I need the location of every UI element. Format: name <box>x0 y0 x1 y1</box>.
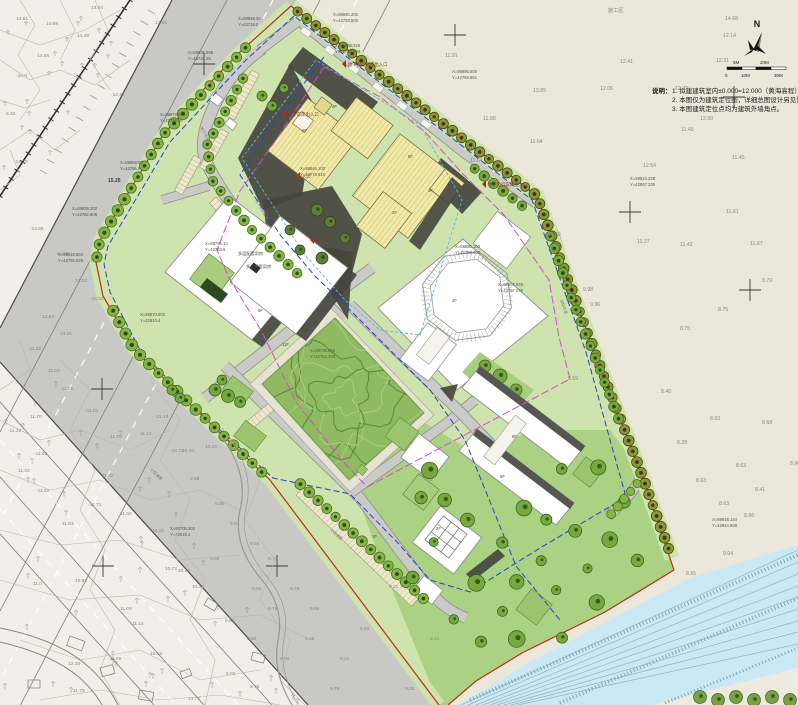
svg-text:9.96: 9.96 <box>590 302 600 308</box>
svg-text:12.22: 12.22 <box>675 86 688 92</box>
svg-text:-14.20: -14.20 <box>14 159 28 165</box>
svg-text:10M: 10M <box>741 73 750 78</box>
svg-text:8.63: 8.63 <box>710 416 720 422</box>
svg-text:8.63: 8.63 <box>719 501 729 507</box>
svg-text:11.70: 11.70 <box>30 414 42 420</box>
svg-text:8.59: 8.59 <box>568 376 578 382</box>
svg-text:X=88918.502: X=88918.502 <box>58 252 84 257</box>
svg-text:-12.47: -12.47 <box>111 92 125 98</box>
svg-text:9.90: 9.90 <box>247 636 257 642</box>
svg-text:8.63: 8.63 <box>736 463 746 469</box>
svg-text:9.35: 9.35 <box>405 686 415 692</box>
svg-text:8.28: 8.28 <box>677 440 687 446</box>
svg-text:-11.32: -11.32 <box>8 428 22 434</box>
svg-text:10.15: 10.15 <box>152 528 164 534</box>
svg-text:11.14: 11.14 <box>140 431 152 437</box>
svg-text:6F: 6F <box>500 474 505 479</box>
svg-text:1F: 1F <box>372 534 377 539</box>
svg-text:-11.32: -11.32 <box>28 346 42 352</box>
svg-text:X=88935.598: X=88935.598 <box>188 50 214 55</box>
svg-text:Y=42810.4: Y=42810.4 <box>140 318 161 323</box>
svg-text:X=88615.144: X=88615.144 <box>712 517 738 522</box>
svg-text:12.33: 12.33 <box>68 661 80 667</box>
svg-text:12.31: 12.31 <box>716 58 729 64</box>
svg-text:9.94: 9.94 <box>250 541 260 547</box>
svg-text:X=88845.100: X=88845.100 <box>300 166 326 171</box>
svg-text:11.0: 11.0 <box>33 581 42 587</box>
svg-text:13.46: 13.46 <box>155 20 167 26</box>
svg-text:14.61: 14.61 <box>16 16 28 22</box>
svg-text:2F: 2F <box>392 210 397 215</box>
svg-text:-14.52: -14.52 <box>90 296 104 302</box>
svg-text:11.42: 11.42 <box>680 242 693 248</box>
svg-text:X=88938.302: X=88938.302 <box>72 206 98 211</box>
svg-text:8.46: 8.46 <box>661 389 671 395</box>
svg-text:Y=42734.26: Y=42734.26 <box>188 56 211 61</box>
svg-text:8.63: 8.63 <box>696 478 706 484</box>
svg-text:8.55: 8.55 <box>686 571 696 577</box>
svg-text:X=88995.600: X=88995.600 <box>452 69 478 74</box>
svg-text:X=88946.20: X=88946.20 <box>238 16 261 21</box>
svg-text:11F: 11F <box>282 342 289 347</box>
svg-text:20M: 20M <box>760 60 769 65</box>
svg-text:X=88705.302: X=88705.302 <box>170 526 196 531</box>
svg-text:11.03: 11.03 <box>48 368 60 374</box>
svg-text:地下自行车库出入口: 地下自行车库出入口 <box>348 61 388 68</box>
svg-text:10.62: 10.62 <box>75 578 87 584</box>
svg-text:9.68: 9.68 <box>190 476 200 482</box>
svg-text:14.68: 14.68 <box>46 21 58 27</box>
svg-text:地下自行车库出入口: 地下自行车库出入口 <box>488 181 528 188</box>
svg-text:9.21: 9.21 <box>340 656 350 662</box>
svg-text:Y=42754.430: Y=42754.430 <box>310 354 336 359</box>
svg-text:-16.0: -16.0 <box>16 73 27 79</box>
svg-text:12.54: 12.54 <box>643 163 656 169</box>
svg-text:9.98: 9.98 <box>583 287 593 293</box>
svg-text:9.45: 9.45 <box>305 636 315 642</box>
svg-text:3. 本图建筑定位点均为建筑外墙角点。: 3. 本图建筑定位点均为建筑外墙角点。 <box>672 104 783 113</box>
svg-text:4F: 4F <box>428 188 433 193</box>
svg-text:5F: 5F <box>408 154 413 159</box>
svg-text:Y=42756.09: Y=42756.09 <box>160 118 183 123</box>
svg-text:X=88824.228: X=88824.228 <box>630 176 656 181</box>
svg-text:-11.01: -11.01 <box>60 386 74 392</box>
svg-text:12.41: 12.41 <box>620 59 633 65</box>
svg-text:X=88870.502: X=88870.502 <box>140 312 166 317</box>
svg-text:12.06: 12.06 <box>600 86 613 92</box>
svg-text:15.27: 15.27 <box>90 258 102 264</box>
svg-text:-11.09: -11.09 <box>108 656 122 662</box>
svg-text:11.27: 11.27 <box>637 239 650 245</box>
svg-text:Y=42786.030: Y=42786.030 <box>455 250 481 255</box>
svg-text:13.94: 13.94 <box>91 5 103 11</box>
svg-text:多层配套用房: 多层配套用房 <box>238 250 263 257</box>
svg-text:8.75: 8.75 <box>718 307 728 313</box>
svg-text:Y=42792.626: Y=42792.626 <box>58 258 84 263</box>
svg-text:X=88680.100: X=88680.100 <box>455 244 481 249</box>
svg-text:X=88978.598: X=88978.598 <box>160 112 186 117</box>
svg-text:9F: 9F <box>258 308 263 313</box>
svg-text:11.61: 11.61 <box>726 209 739 215</box>
svg-text:8.79: 8.79 <box>762 278 772 284</box>
svg-text:Y=42759.851: Y=42759.851 <box>452 75 478 80</box>
svg-text:14.68: 14.68 <box>37 53 49 59</box>
svg-text:X=88657.946: X=88657.946 <box>498 282 524 287</box>
svg-text:13F: 13F <box>300 328 308 333</box>
svg-text:11.02: 11.02 <box>120 511 132 517</box>
svg-text:9.94: 9.94 <box>252 586 262 592</box>
svg-text:11.91: 11.91 <box>445 53 458 59</box>
svg-text:11.01: 11.01 <box>62 521 74 527</box>
svg-text:入口: 入口 <box>302 174 311 179</box>
svg-text:主入口: 主入口 <box>316 237 329 243</box>
svg-text:11.33: 11.33 <box>18 468 30 474</box>
svg-text:-11.32: -11.32 <box>34 451 48 457</box>
svg-text:Y=42797.030: Y=42797.030 <box>498 288 524 293</box>
svg-text:Y=42752.534: Y=42752.534 <box>335 49 361 54</box>
svg-text:14.52: 14.52 <box>75 278 87 284</box>
svg-text:9.21: 9.21 <box>430 636 440 642</box>
svg-text:Y=42782.806: Y=42782.806 <box>72 212 98 217</box>
svg-text:X=88940.200: X=88940.200 <box>333 12 359 17</box>
svg-text:10.10: 10.10 <box>178 568 190 574</box>
svg-text:12.14: 12.14 <box>723 33 736 39</box>
svg-text:Y=42816.1: Y=42816.1 <box>170 532 191 537</box>
svg-text:Y=42766.5: Y=42766.5 <box>120 166 141 171</box>
svg-text:11.70: 11.70 <box>110 434 122 440</box>
svg-text:-14.65: -14.65 <box>30 226 44 232</box>
svg-text:10.10: 10.10 <box>182 448 194 454</box>
svg-text:8.68: 8.68 <box>762 420 772 426</box>
svg-text:11.09: 11.09 <box>120 606 132 612</box>
svg-text:13.85: 13.85 <box>533 88 546 94</box>
svg-text:14.38: 14.38 <box>77 33 89 39</box>
svg-text:11.02: 11.02 <box>102 473 114 479</box>
svg-text:8.75: 8.75 <box>680 326 690 332</box>
svg-text:9.76: 9.76 <box>330 686 340 692</box>
svg-text:6F: 6F <box>512 434 517 439</box>
svg-text:8.33: 8.33 <box>6 111 16 117</box>
svg-text:14.68: 14.68 <box>725 16 738 22</box>
svg-text:2. 本图仅为建筑定位图，详细总图设计另见景观设计: 2. 本图仅为建筑定位图，详细总图设计另见景观设计 <box>672 95 798 104</box>
svg-text:8.41: 8.41 <box>755 487 765 493</box>
svg-text:1. 拟建建筑室内±0.000=12.000（黄海高程）: 1. 拟建建筑室内±0.000=12.000（黄海高程） <box>672 86 798 95</box>
svg-text:9.04: 9.04 <box>723 551 733 557</box>
svg-text:Y=42867.235: Y=42867.235 <box>630 182 656 187</box>
svg-text:地下车库出入口: 地下车库出入口 <box>288 111 319 118</box>
svg-text:施工区: 施工区 <box>608 6 624 14</box>
svg-text:13.63: 13.63 <box>42 314 54 320</box>
svg-text:11.67: 11.67 <box>750 241 763 247</box>
svg-text:13.61: 13.61 <box>60 331 72 337</box>
svg-text:9.68: 9.68 <box>225 618 235 624</box>
svg-text:9.21: 9.21 <box>389 584 399 590</box>
svg-text:多层配套用房: 多层配套用房 <box>246 263 271 270</box>
svg-text:30M: 30M <box>774 73 783 78</box>
svg-text:X=88998.726: X=88998.726 <box>335 43 361 48</box>
svg-text:6.45: 6.45 <box>360 626 370 632</box>
svg-text:11.30: 11.30 <box>548 232 561 238</box>
svg-text:5M: 5M <box>733 60 740 65</box>
svg-text:6F: 6F <box>302 128 307 133</box>
svg-text:X=88958.80: X=88958.80 <box>120 160 143 165</box>
svg-text:11.64: 11.64 <box>470 158 483 164</box>
svg-text:X=88738.556: X=88738.556 <box>310 348 336 353</box>
svg-text:9.79: 9.79 <box>290 586 300 592</box>
svg-text:4F: 4F <box>332 104 337 109</box>
svg-text:9.76: 9.76 <box>250 684 260 690</box>
svg-text:Y=42718.0: Y=42718.0 <box>238 22 259 27</box>
svg-text:10.15: 10.15 <box>205 444 217 450</box>
svg-text:-11.01: -11.01 <box>85 408 99 414</box>
svg-text:11.64: 11.64 <box>530 139 543 145</box>
svg-text:9.74: 9.74 <box>268 606 278 612</box>
svg-text:Y=42944.588: Y=42944.588 <box>712 523 738 528</box>
svg-text:13.90: 13.90 <box>700 116 713 122</box>
svg-text:3F: 3F <box>452 298 457 303</box>
svg-text:11.14: 11.14 <box>132 621 144 627</box>
svg-text:10.72: 10.72 <box>165 566 177 572</box>
svg-text:9.66: 9.66 <box>310 606 320 612</box>
svg-text:-11.18: -11.18 <box>155 414 169 420</box>
svg-text:15.25: 15.25 <box>108 178 121 184</box>
svg-text:2F: 2F <box>436 526 441 531</box>
svg-text:11.90: 11.90 <box>483 116 496 122</box>
svg-text:Y=42723.500: Y=42723.500 <box>333 18 359 23</box>
svg-text:-11.71: -11.71 <box>88 502 102 508</box>
svg-text:Y=42763.6: Y=42763.6 <box>205 247 226 252</box>
svg-text:X=88795.10: X=88795.10 <box>205 241 228 246</box>
svg-text:8.96: 8.96 <box>790 461 798 467</box>
svg-text:11.45: 11.45 <box>681 127 694 133</box>
svg-text:11.45: 11.45 <box>732 155 745 161</box>
svg-text:说明：: 说明： <box>652 86 672 95</box>
svg-text:N: N <box>754 19 761 29</box>
svg-text:8.96: 8.96 <box>744 513 754 519</box>
